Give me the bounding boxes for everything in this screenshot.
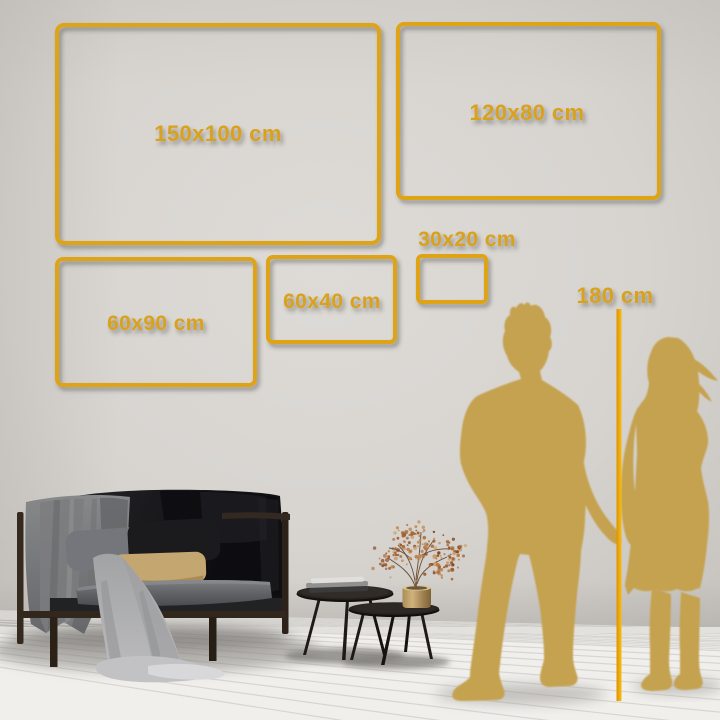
- svg-text:180 cm: 180 cm: [576, 283, 653, 308]
- svg-text:120x80 cm: 120x80 cm: [470, 100, 585, 125]
- svg-text:60x40 cm: 60x40 cm: [283, 290, 381, 313]
- svg-text:60x90 cm: 60x90 cm: [107, 312, 205, 335]
- svg-text:30x20 cm: 30x20 cm: [418, 228, 516, 251]
- svg-text:150x100 cm: 150x100 cm: [154, 121, 282, 146]
